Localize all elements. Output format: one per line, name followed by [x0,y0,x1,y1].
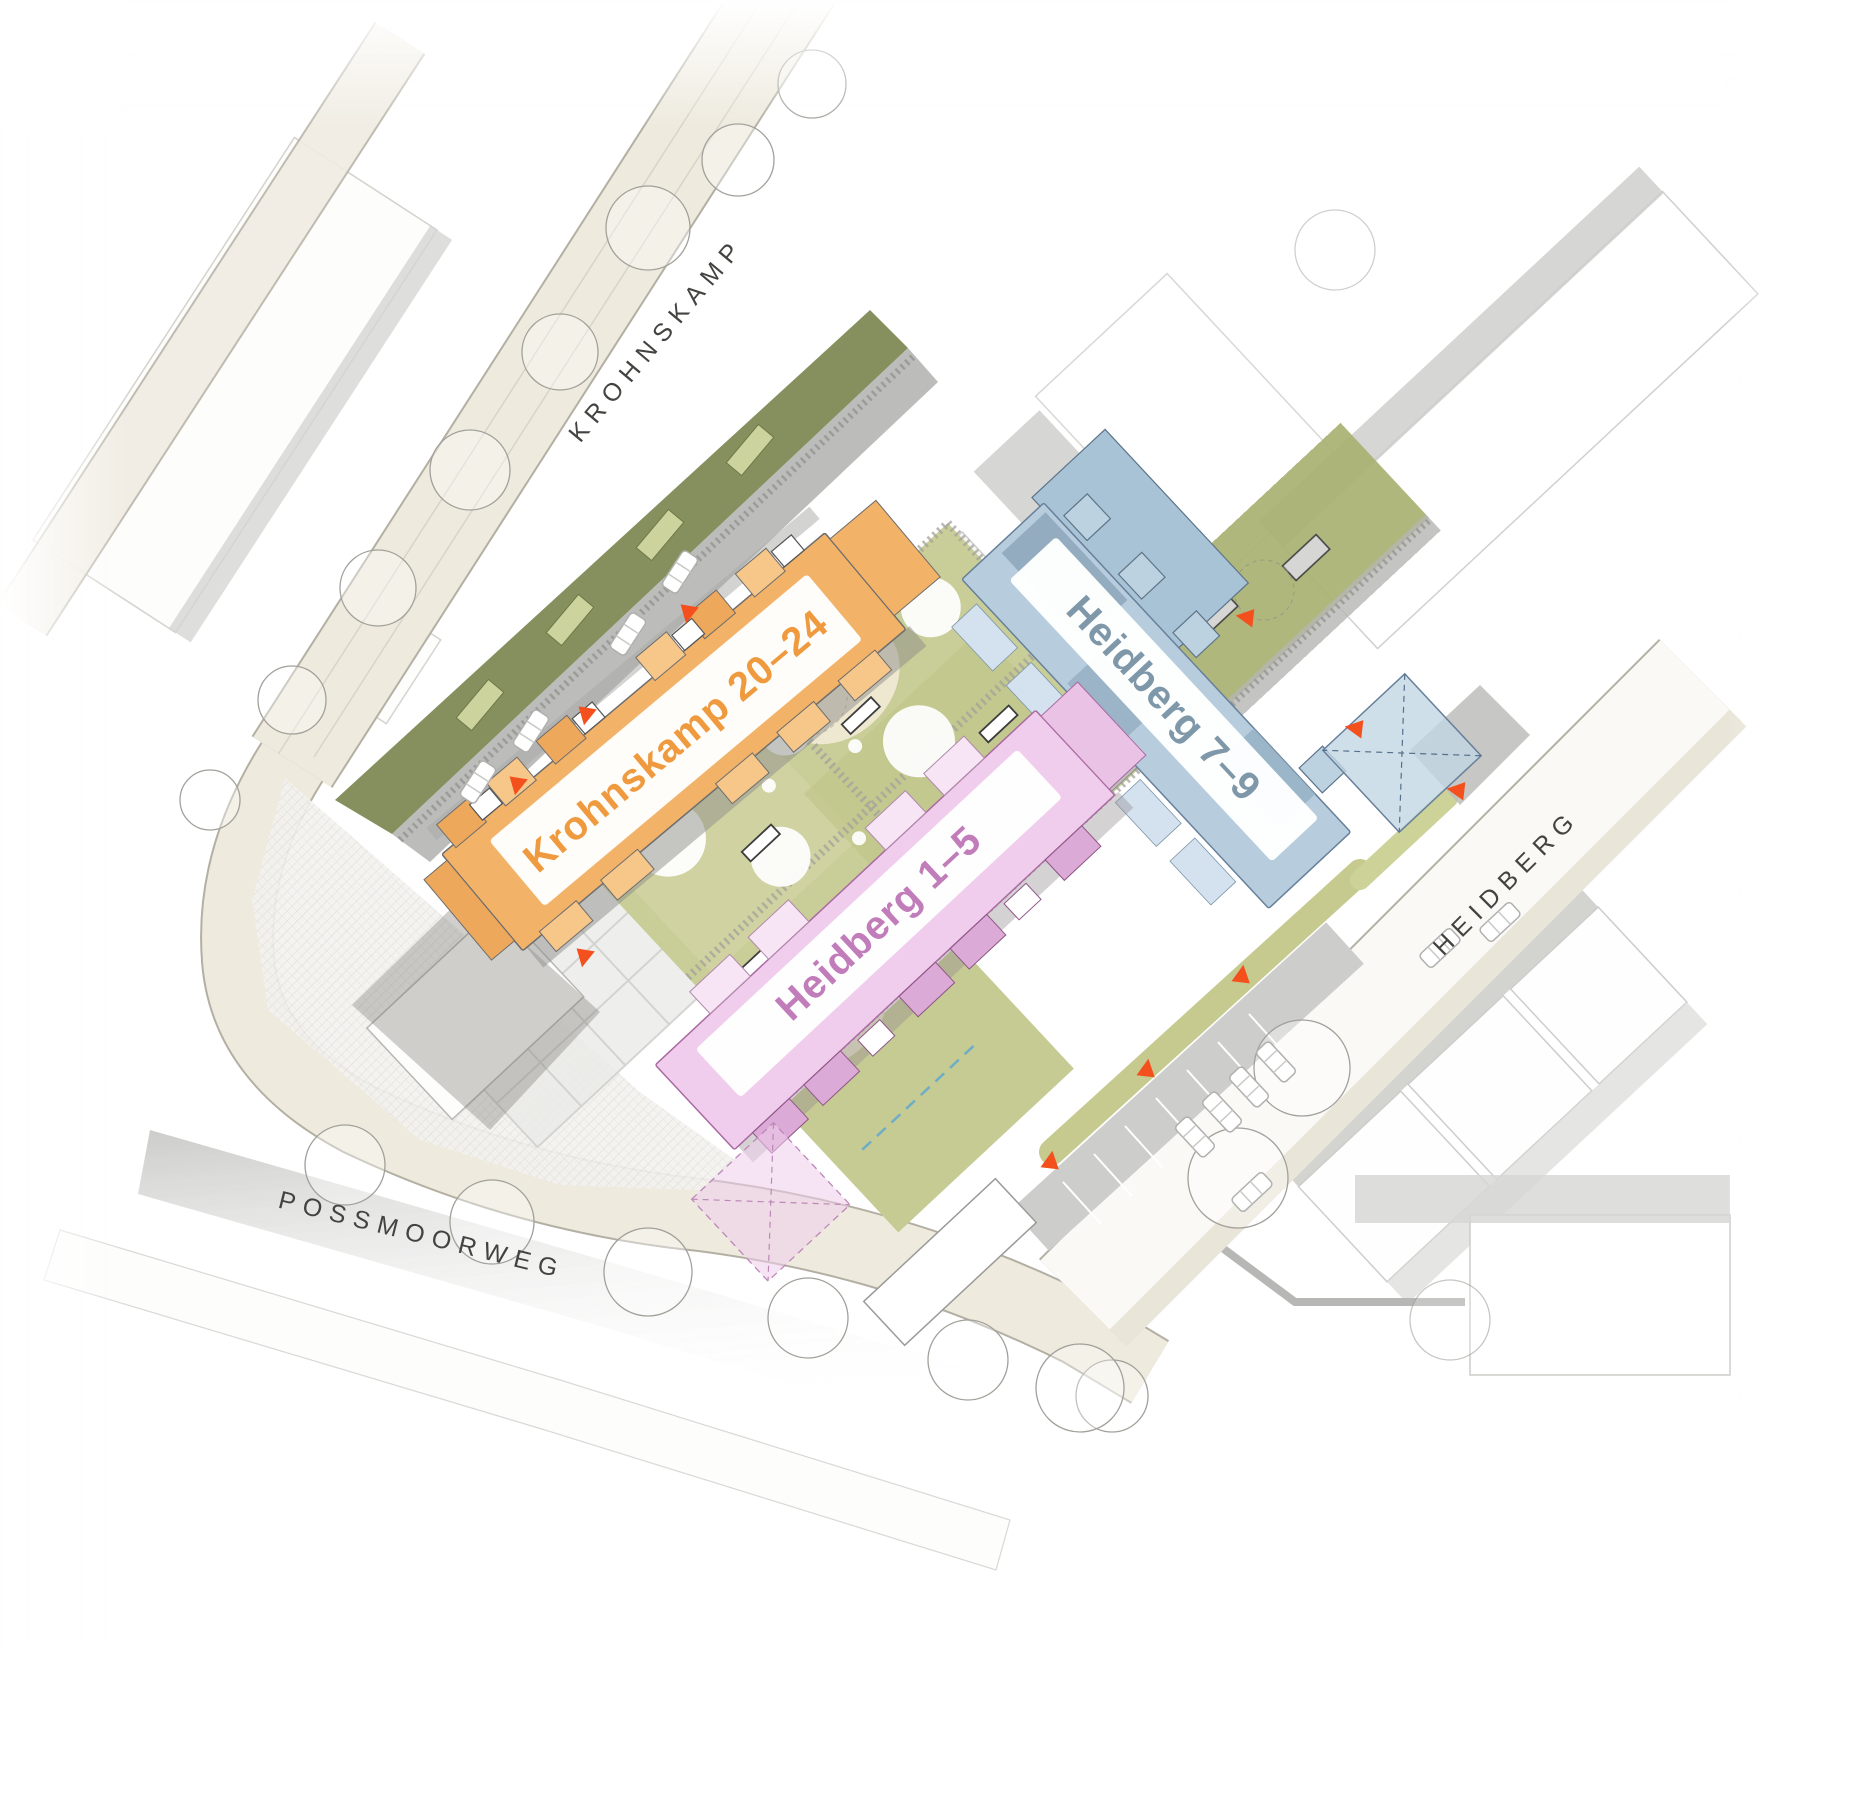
context-building-southeast-shadow [1355,1175,1730,1223]
site-plan: Krohnskamp 20–24 Heidberg 7–9 [0,0,1864,1806]
site-plan-canvas: Krohnskamp 20–24 Heidberg 7–9 [0,0,1864,1806]
context-building-southeast [1470,1215,1730,1375]
heidberg-7-9-x-court [1323,674,1481,832]
